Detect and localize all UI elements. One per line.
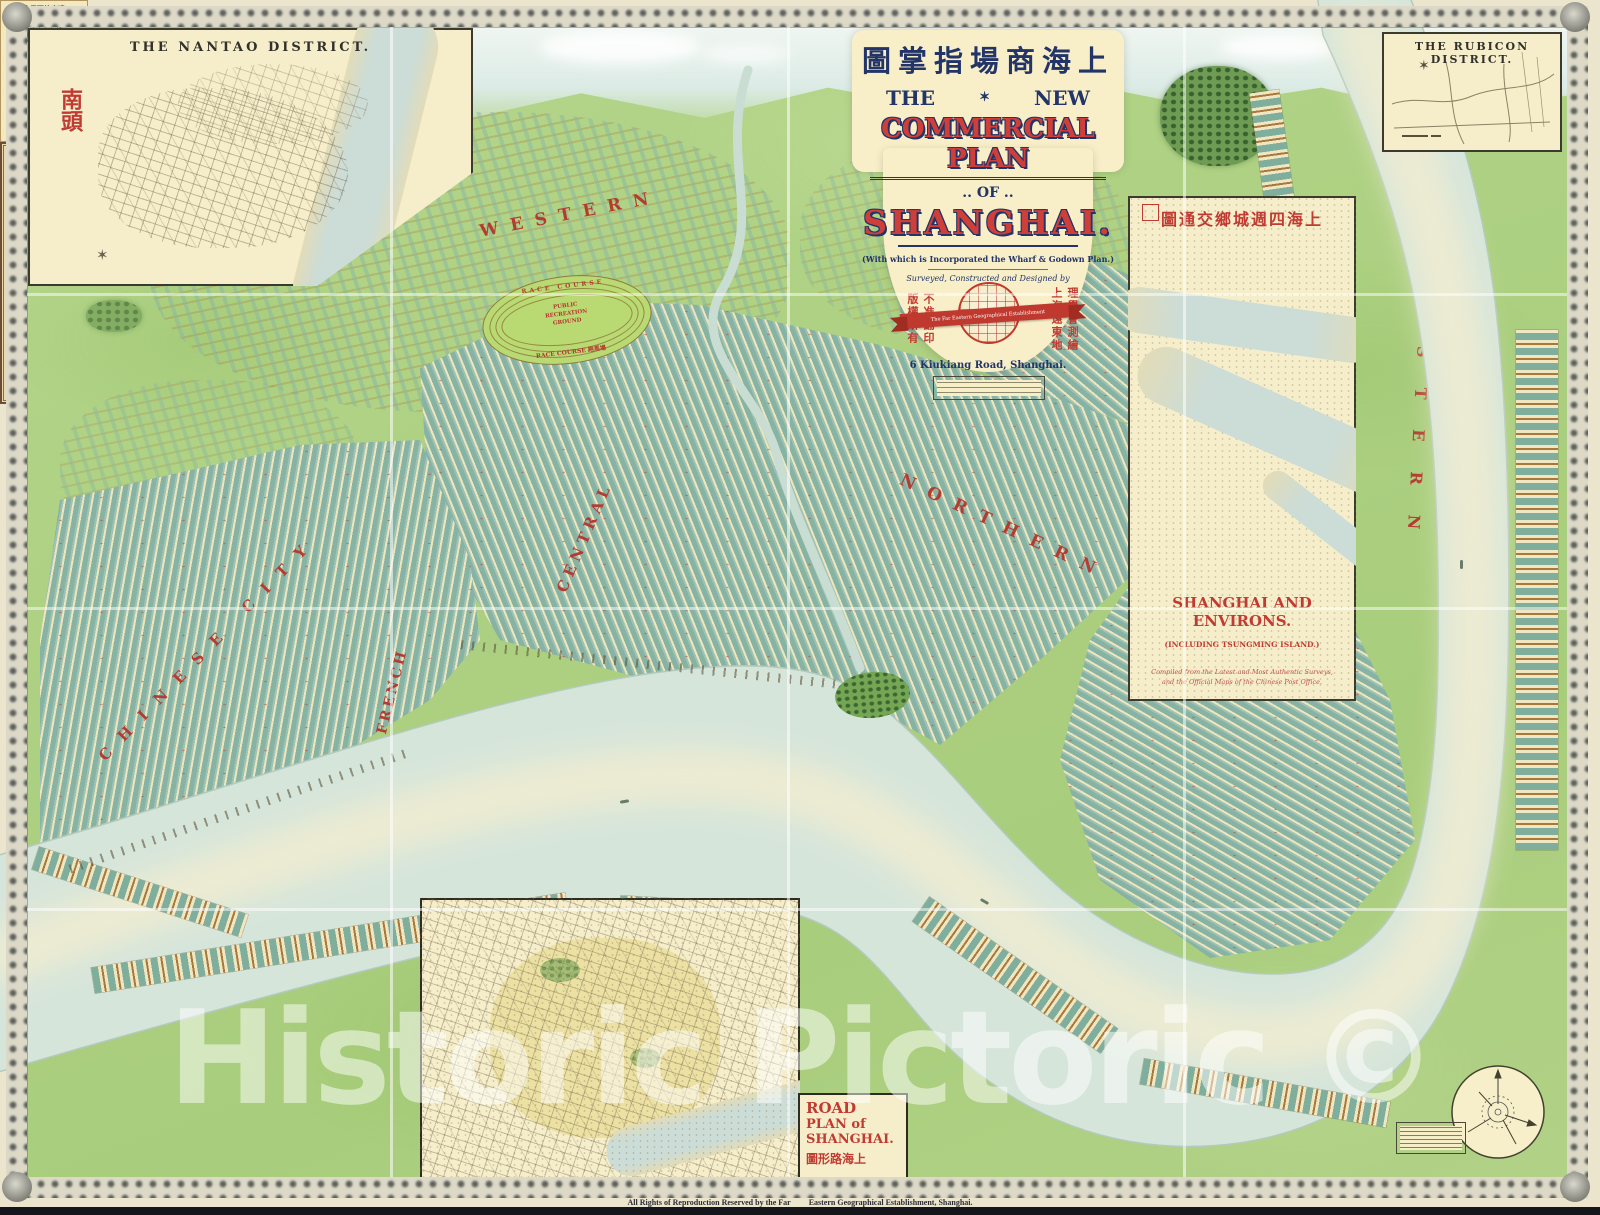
- title-of: .. OF ..: [852, 185, 1124, 201]
- publisher-address: 6 Kiukiang Road, Shanghai.: [852, 360, 1124, 371]
- rights-caption-right: Eastern Geographical Establishment, Shan…: [809, 1198, 973, 1207]
- cartouche-fine-print-box: [933, 376, 1045, 400]
- sheet-bottom-edge: [0, 1207, 1600, 1215]
- frame-right: [1567, 6, 1588, 1198]
- chinese-main-title: 圖掌指場商海上: [852, 38, 1124, 80]
- nantao-seal: 南頭: [54, 88, 86, 132]
- fold-crease: [26, 607, 1568, 610]
- wharf-strip-east-bank: [1516, 330, 1558, 850]
- roadplan-title-3: SHANGHAI.: [806, 1132, 900, 1147]
- fold-crease: [26, 908, 1568, 911]
- divider-scroll: [928, 269, 1048, 270]
- environs-note-1: Compiled from the Latest and Most Authen…: [1128, 668, 1356, 676]
- rights-caption-left: All Rights of Reproduction Reserved by t…: [628, 1198, 791, 1207]
- title-the: THE: [886, 86, 935, 110]
- star-ornament: ✶: [979, 90, 990, 110]
- title-rule-2: [898, 245, 1078, 247]
- title-subtitle: (With which is Incorporated the Wharf & …: [852, 254, 1124, 264]
- inset-rubicon-district: THE RUBICON DISTRICT. ✶: [1382, 32, 1562, 152]
- environs-subtitle: (INCLUDING TSUNGMING ISLAND.): [1128, 640, 1356, 649]
- title-cartouche: 圖掌指場商海上 THE ✶ NEW COMMERCIAL PLAN .. OF …: [852, 30, 1124, 380]
- fold-crease: [26, 293, 1568, 296]
- ribbon-text: The Far Eastern Geographical Establishme…: [931, 309, 1046, 323]
- environs-note-2: and the Official Maps of the Chinese Pos…: [1128, 678, 1356, 686]
- title-rule: [870, 177, 1106, 180]
- title-new: NEW: [1034, 86, 1090, 110]
- environs-seal: [1142, 204, 1159, 221]
- title-shanghai: SHANGHAI.: [852, 203, 1124, 242]
- environs-title: SHANGHAI AND ENVIRONS.: [1128, 594, 1356, 630]
- map-sheet: RACE COURSE PUBLIC RECREATION GROUND RAC…: [0, 0, 1600, 1215]
- frame-top: [6, 6, 1588, 27]
- roadplan-chinese-title: 圖形路海上: [806, 1150, 900, 1167]
- watermark: Historic Pictoric ©: [168, 982, 1435, 1134]
- inset-shanghai-environs: 圖通交鄉城週四海上 SHANGHAI AND ENVIRONS. (INCLUD…: [1128, 196, 1356, 701]
- frame-bottom: [6, 1177, 1588, 1198]
- nantao-title: THE NANTAO DISTRICT.: [28, 40, 473, 55]
- environs-chinese-title: 圖通交鄉城週四海上: [1128, 206, 1356, 230]
- nantao-compass-star: ✶: [96, 246, 109, 264]
- rubicon-title: THE RUBICON DISTRICT.: [1382, 40, 1562, 66]
- frame-medallion: [1560, 2, 1590, 32]
- title-commercial-plan: COMMERCIAL PLAN: [852, 114, 1124, 174]
- nantao-streets: [178, 64, 368, 144]
- frame-left: [6, 6, 27, 1198]
- boat: [1460, 560, 1463, 569]
- frame-medallion: [2, 2, 32, 32]
- rubicon-compass-star: ✶: [1418, 58, 1430, 74]
- rights-caption: All Rights of Reproduction Reserved by t…: [0, 1198, 1600, 1207]
